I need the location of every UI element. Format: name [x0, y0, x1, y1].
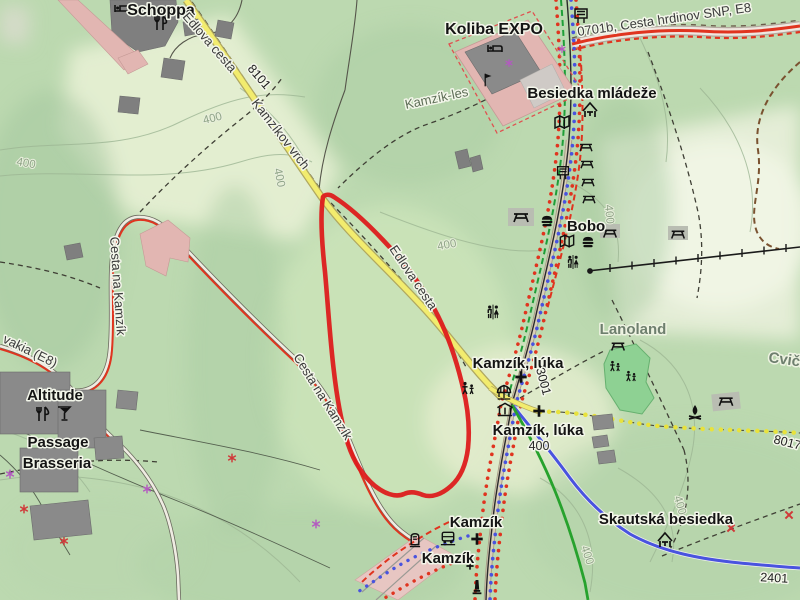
carousel-icon[interactable] — [498, 386, 511, 400]
map-viewport[interactable]: Schoppa Koliba EXPO 0701b, Cesta hrdinov… — [0, 0, 800, 600]
label-lanoland: Lanoland — [600, 321, 667, 338]
label-skautska-besiedka: Skautská besiedka — [599, 511, 734, 528]
label-bobo: Bobo — [567, 218, 605, 235]
label-altitude: Altitude — [27, 387, 83, 404]
label-kamzik-luka-elev: 400 — [529, 439, 550, 453]
label-kamzik-stop-1: Kamzík — [450, 514, 503, 531]
label-passage: Passage — [28, 434, 89, 451]
fast-food-icon[interactable] — [583, 237, 594, 247]
label-kamzik-stop-2: Kamzík — [422, 550, 475, 567]
fast-food-icon[interactable] — [542, 216, 553, 226]
label-kamzik-luka-1: Kamzík, lúka — [473, 355, 565, 372]
map-canvas[interactable]: Schoppa Koliba EXPO 0701b, Cesta hrdinov… — [0, 0, 800, 600]
svg-text:400: 400 — [602, 204, 616, 224]
label-kamzik-luka-2: Kamzík, lúka — [493, 422, 585, 439]
label-brasseria: Brasseria — [23, 455, 92, 472]
label-besiedka-mladeze: Besiedka mládeže — [527, 85, 656, 102]
label-route-2401: 2401 — [760, 570, 789, 585]
label-koliba-expo: Koliba EXPO — [445, 21, 543, 38]
